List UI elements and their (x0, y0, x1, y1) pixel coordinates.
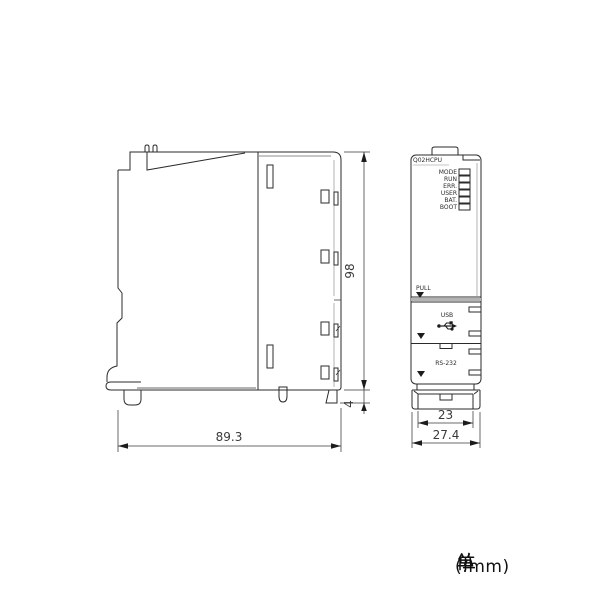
led-block: MODE RUN ERR. USER BAT. BOOT (439, 169, 470, 211)
arrow-top (361, 152, 367, 162)
dim-outer-width-value: 27.4 (433, 428, 460, 442)
arrow-left (118, 443, 128, 449)
dim-foot-4: 4 (340, 390, 370, 414)
front-top-tab (432, 147, 458, 155)
bottom-foot (326, 390, 337, 403)
unit-note: ( :mm) (455, 552, 510, 582)
front-view: Q02HCPU MODE RUN ERR. USER BAT. BOOT PUL… (411, 147, 481, 409)
led-label-mode: MODE (439, 169, 458, 176)
led-windows (459, 169, 470, 210)
bottom-block (412, 384, 480, 409)
led-label-boot: BOOT (440, 204, 457, 211)
usb-cover-triangle-icon (417, 333, 425, 339)
dim-height-value: 98 (343, 263, 357, 278)
dim-foot-value: 4 (342, 400, 356, 408)
dimension-drawing: 89.3 98 4 Q02HCPU MODE RUN ERR. USER (0, 0, 600, 600)
arrow-right (470, 440, 480, 446)
model-label: Q02HCPU (413, 157, 442, 164)
led-label-run: RUN (444, 176, 457, 183)
din-rail-clip (106, 382, 141, 405)
kanji-i-position-icon (456, 552, 475, 571)
arrow-up (361, 403, 367, 411)
right-latch-tabs (469, 307, 481, 375)
cover-divider-mid (411, 344, 481, 349)
bottom-hook (279, 387, 287, 402)
arrow-right (331, 443, 341, 449)
led-label-bat: BAT. (444, 197, 457, 204)
led-label-user: USER (441, 190, 457, 197)
dim-width-89: 89.3 (118, 408, 341, 452)
side-mount-tabs (321, 190, 338, 381)
usb-icon (437, 321, 457, 330)
arrow-right (463, 420, 473, 426)
dim-height-98: 98 (343, 152, 370, 390)
dim-inner-width-23: 23 (418, 408, 473, 428)
top-hooks (145, 145, 157, 152)
dim-inner-width-value: 23 (438, 408, 453, 422)
rs232-label: RS-232 (435, 360, 457, 367)
led-label-err: ERR. (443, 183, 457, 190)
side-left-edge (107, 170, 122, 382)
arrow-left (418, 420, 428, 426)
front-corner-notch (463, 155, 480, 160)
dim-width-value: 89.3 (216, 430, 243, 444)
side-body-outline (118, 152, 341, 390)
side-view (106, 145, 341, 405)
diagram-canvas: 89.3 98 4 Q02HCPU MODE RUN ERR. USER (0, 0, 600, 600)
vent-slots (267, 165, 273, 368)
rs232-cover-triangle-icon (417, 371, 425, 377)
arrow-left (412, 440, 422, 446)
arrow-bottom (361, 380, 367, 390)
top-slope-edge (147, 152, 245, 170)
pull-label: PULL (416, 285, 431, 292)
usb-label: USB (441, 312, 453, 319)
